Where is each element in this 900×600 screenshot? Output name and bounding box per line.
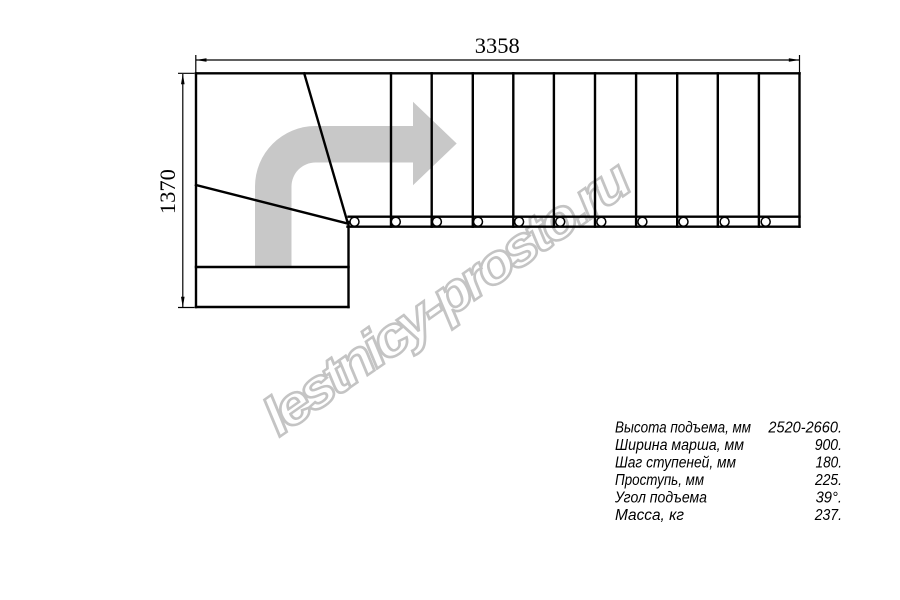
svg-text:3358: 3358 — [475, 33, 520, 58]
svg-text:1370: 1370 — [155, 169, 180, 214]
svg-text:Ширина марша, мм: Ширина марша, мм — [615, 437, 744, 454]
svg-text:225.: 225. — [814, 472, 842, 489]
svg-text:Угол подъема: Угол подъема — [614, 489, 707, 506]
svg-text:Высота подъема, мм: Высота подъема, мм — [615, 419, 751, 436]
svg-text:39°.: 39°. — [816, 489, 842, 506]
svg-text:180.: 180. — [816, 454, 843, 471]
svg-text:Проступь, мм: Проступь, мм — [615, 472, 704, 489]
svg-text:2520-2660.: 2520-2660. — [767, 419, 842, 436]
svg-text:Масса, кг: Масса, кг — [615, 507, 684, 524]
svg-text:900.: 900. — [815, 437, 842, 454]
svg-text:Шаг ступеней, мм: Шаг ступеней, мм — [615, 454, 736, 471]
svg-text:237.: 237. — [814, 507, 842, 524]
